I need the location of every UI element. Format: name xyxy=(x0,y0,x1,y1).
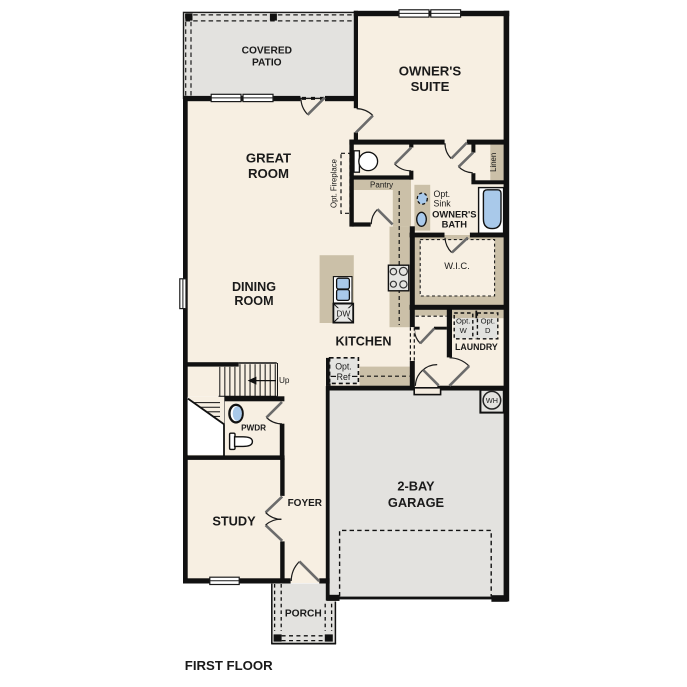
svg-text:Opt.: Opt. xyxy=(456,316,470,325)
svg-text:Up: Up xyxy=(279,376,290,385)
svg-text:FOYER: FOYER xyxy=(288,498,323,509)
svg-text:ROOM: ROOM xyxy=(234,294,273,308)
svg-text:Linen: Linen xyxy=(489,153,498,172)
svg-text:COVERED: COVERED xyxy=(242,45,292,56)
svg-text:PORCH: PORCH xyxy=(285,609,322,620)
svg-text:GARAGE: GARAGE xyxy=(388,495,445,510)
svg-text:D: D xyxy=(485,326,491,335)
svg-text:Sink: Sink xyxy=(434,198,452,208)
svg-text:WH: WH xyxy=(486,396,498,405)
svg-text:SUITE: SUITE xyxy=(411,79,450,94)
svg-text:KITCHEN: KITCHEN xyxy=(336,334,392,348)
svg-text:Opt.: Opt. xyxy=(481,316,495,325)
svg-text:2-BAY: 2-BAY xyxy=(397,479,435,494)
svg-text:DINING: DINING xyxy=(232,280,276,294)
svg-text:ROOM: ROOM xyxy=(248,166,289,181)
svg-text:LAUNDRY: LAUNDRY xyxy=(455,342,498,352)
svg-text:Opt.: Opt. xyxy=(434,189,451,199)
svg-text:STUDY: STUDY xyxy=(212,514,256,529)
svg-text:FIRST FLOOR: FIRST FLOOR xyxy=(185,658,273,673)
svg-text:GREAT: GREAT xyxy=(246,150,291,165)
svg-text:BATH: BATH xyxy=(442,218,468,229)
svg-text:OWNER'S: OWNER'S xyxy=(399,63,462,78)
svg-text:W.I.C.: W.I.C. xyxy=(444,260,470,271)
svg-text:Pantry: Pantry xyxy=(370,180,393,189)
svg-text:DW: DW xyxy=(336,308,350,318)
svg-text:W: W xyxy=(460,326,468,335)
svg-text:PWDR: PWDR xyxy=(241,423,266,432)
svg-text:Opt. Fireplace: Opt. Fireplace xyxy=(329,159,338,208)
svg-text:Opt.: Opt. xyxy=(335,361,352,371)
svg-text:Ref: Ref xyxy=(337,372,351,382)
svg-text:PATIO: PATIO xyxy=(252,57,282,68)
